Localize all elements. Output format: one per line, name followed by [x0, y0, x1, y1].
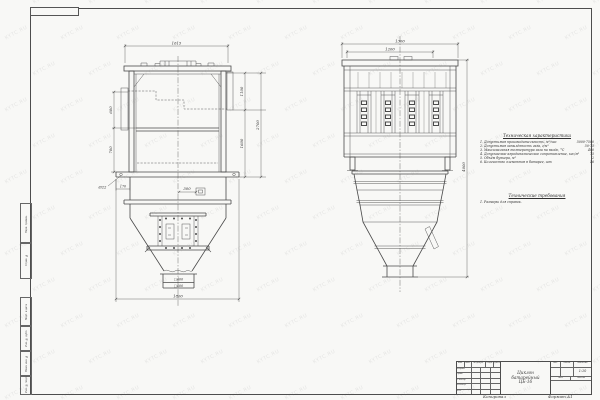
dim-top-outer: 1300: [395, 38, 405, 43]
dim-bottom-width: 1800: [173, 294, 183, 299]
dim-right-upper: 1100: [239, 86, 244, 96]
copied-by-label: Копировал: [483, 394, 506, 399]
dim-right-overall: 2700: [255, 120, 260, 131]
title-block-revision-grid: Изм. Лист № докум. Подп. Дата Разраб. Пр…: [457, 362, 501, 394]
dim-outlet-inner: □400: [174, 278, 183, 282]
dim-left-upper: 600: [108, 106, 113, 114]
dim-outlet-outer: □600: [174, 284, 183, 288]
dim-top-width: 1615: [172, 40, 182, 45]
side-view: 1300 1200: [341, 36, 469, 292]
tb-right-values-row: 1:10: [551, 367, 591, 376]
tb-role-cell: Утв.: [457, 390, 472, 395]
tb-org-cell: [551, 380, 591, 394]
front-view: 1615 300: [98, 40, 266, 306]
scanned-drawing-page: Перв. примен. Справ. № Подп. и дата Инв.…: [0, 0, 600, 400]
dim-top-inner: 1200: [385, 46, 395, 51]
dim-right-lower: 1600: [239, 138, 244, 148]
drawing-name-line: ЦБ-16: [519, 380, 532, 385]
tech-characteristics: Техническая характеристика 1. Допустимая…: [480, 133, 594, 164]
tb-scale-value: 1:10: [574, 368, 591, 376]
requirement-item: 1. Размеры для справок.: [480, 200, 594, 204]
tb-lit-value: [551, 368, 561, 376]
tb-empty-cell: [472, 390, 482, 395]
tech-characteristics-heading: Техническая характеристика: [480, 133, 594, 138]
dim-fitting-offset: 300: [183, 186, 191, 191]
dim-left-lower: 700: [108, 146, 113, 154]
tech-requirements: Технические требования 1. Размеры для сп…: [480, 193, 594, 204]
dim-bolt-hole: Ø22: [98, 185, 108, 190]
title-block-right: Лит. Масса Масштаб 1:10 Лист Листов: [551, 362, 591, 394]
title-block: Изм. Лист № докум. Подп. Дата Разраб. Пр…: [456, 361, 592, 395]
note-value: 16: [590, 160, 594, 164]
dim-overall-height: 4000: [461, 162, 466, 173]
tb-mass-value: [561, 368, 574, 376]
title-block-name: Циклон батарейный ЦБ-16: [501, 362, 551, 394]
format-label: Формат А1: [548, 394, 573, 399]
note-item: 6. Количество элементов в батарее, шт16: [480, 160, 594, 164]
note-label: 6. Количество элементов в батарее, шт: [480, 160, 552, 164]
tech-requirements-heading: Технические требования: [480, 193, 594, 198]
requirement-label: 1. Размеры для справок.: [480, 200, 522, 204]
dim-base-offset: 170: [120, 184, 126, 188]
